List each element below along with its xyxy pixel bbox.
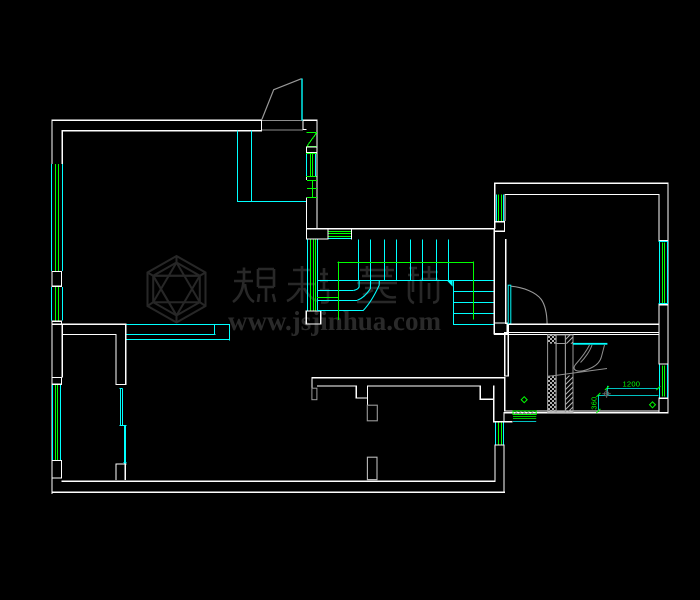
svg-text:360: 360 [590,397,599,410]
svg-text:1200: 1200 [623,380,641,389]
